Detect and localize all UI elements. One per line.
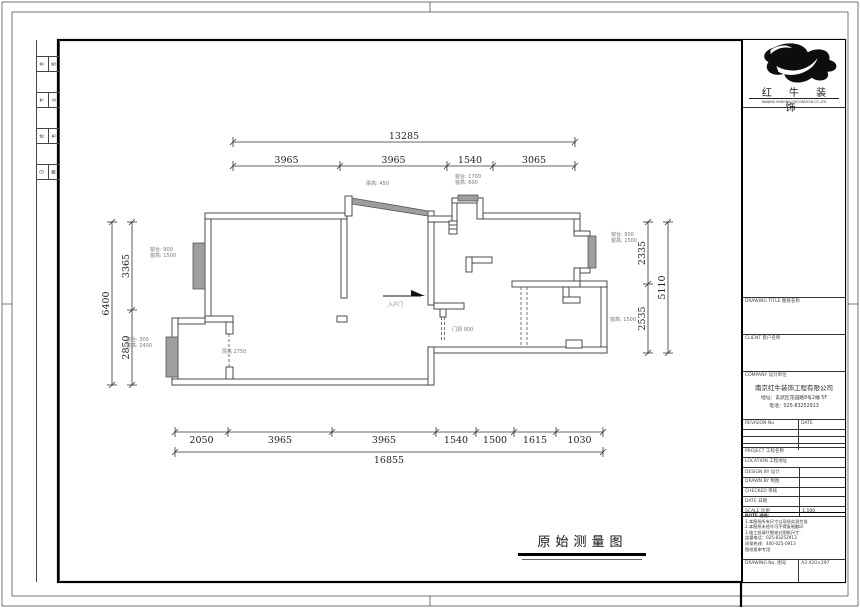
drawing-sheet: 1328539653965154030652050396539651540150… [0,0,860,608]
binding-margin-strip: 会签专业姓名日期 [36,40,60,582]
client-cell: CLIENT 客户名称 [743,335,845,372]
revision-col1: REVISION No. [743,420,799,429]
plan-annotation: 窗台: 900 [150,246,173,253]
margin-cell-label: 签 [51,62,57,66]
plan-annotation: 窗台: 1700 [455,173,481,180]
drawing-number-cell: DRAWING No. 图号 A3 420×297 [743,560,845,582]
drawing-no-label: DRAWING No. 图号 [743,560,799,582]
plan-annotation: 窗高: 600 [455,179,478,186]
revision-col2: DATE [799,420,845,429]
dim-label: 2335 [637,241,648,265]
title-block-row: DATE 日期 [743,497,845,507]
logo-tagline: NANJING HONGNIU DECORATION CO.,LTD [748,100,840,104]
title-block-row: CHECKED 审核 [743,488,845,498]
margin-cell-label: 会 [39,62,45,66]
plan-annotation: 窗台: 300 [126,336,149,343]
plan-annotation: 窗高: 1500 [150,252,176,259]
dim-label: 3965 [274,155,298,166]
client-label: CLIENT 客户名称 [743,335,845,342]
plan-annotation: 层高 2750 [222,348,246,355]
dim-label: 2535 [637,306,648,330]
dim-label: 6400 [101,291,112,315]
company-label: COMPANY 设计单位 [743,372,845,379]
entry-arrow-icon [383,290,425,296]
dim-label: 3065 [522,155,546,166]
margin-cell: 专业 [37,92,59,108]
dim-label: 3965 [372,435,396,446]
note-line: 图纸报审专用 [743,547,845,553]
dim-label: 1615 [523,435,547,446]
dim-label: 16855 [374,455,404,466]
dim-label: 2050 [189,435,213,446]
drawing-title-label: DRAWING TITLE 图纸名称 [743,298,845,305]
signature-rows: DESIGN BY 设计DRAWN BY 制图CHECKED 审核DATE 日期… [743,468,845,517]
dim-label: 1500 [483,435,507,446]
row-label: CHECKED 审核 [743,488,799,497]
location-cell: LOCATION 工程地址 [743,458,845,468]
row-label: DESIGN BY 设计 [743,468,799,477]
plan-annotation: 门洞 900 [452,326,473,333]
row-label: DATE 日期 [743,497,799,506]
dashed-openings [229,287,527,367]
margin-cell: 日期 [37,164,59,180]
margin-cell-label: 专 [39,98,45,102]
dim-label: 1540 [444,435,468,446]
project-label: PROJECT 工程名称 [743,448,845,455]
sheet-title: 原始测量图 [505,531,655,550]
location-label: LOCATION 工程地址 [743,458,845,465]
logo-cell: 红 牛 装 饰 NANJING HONGNIU DECORATION CO.,L… [743,40,845,108]
row-value [799,478,845,487]
notes-cell: NOTE 说明: 1.本图纸所有尺寸以现场实测为准2.本图纸未经许可不得复制翻印… [743,512,845,560]
row-value [799,468,845,477]
plan-annotation: 梁高: 450 [366,180,389,187]
dim-label: 3965 [268,435,292,446]
bull-logo-icon [743,40,845,84]
plan-annotation: 窗高: 1500 [610,316,636,323]
title-block-row: DESIGN BY 设计 [743,468,845,478]
paper-size-label: A3 420×297 [799,560,845,582]
revision-table: REVISION No. DATE [743,420,845,448]
row-value [799,497,845,506]
plan-annotation: 窗高: 2400 [126,342,152,349]
margin-cell: 会签 [37,56,59,72]
dim-label: 5110 [657,275,668,299]
margin-cell-label: 业 [51,98,57,102]
dim-label: 1030 [567,435,591,446]
company-cell: COMPANY 设计单位 南京红牛装饰工程有限公司 地址：玄武区花园路8号2幢 … [743,372,845,420]
key-plan-cell [743,108,845,298]
walls [172,196,607,385]
dim-label: 3965 [381,155,405,166]
floor-plan-svg: 1328539653965154030652050396539651540150… [0,0,860,608]
title-block: 红 牛 装 饰 NANJING HONGNIU DECORATION CO.,L… [741,40,845,582]
company-address: 地址：玄武区花园路8号2幢 5F [743,394,845,401]
logo-divider [749,98,839,99]
title-underline-thin [522,559,642,560]
bay-window [352,198,428,216]
dim-label: 13285 [389,131,419,142]
company-phone: 电话：025-83252913 [743,402,845,409]
row-label: DRAWN BY 制图 [743,478,799,487]
margin-cell: 姓名 [37,128,59,144]
row-value [799,488,845,497]
project-cell: PROJECT 工程名称 [743,448,845,458]
dim-label: 1540 [458,155,482,166]
drawing-title-cell: DRAWING TITLE 图纸名称 [743,298,845,335]
margin-cell-label: 名 [51,134,57,138]
plan-annotation: 窗高: 1500 [611,237,637,244]
title-underline [518,553,646,556]
plan-annotation: 窗台: 900 [611,231,634,238]
plan-annotation: 入户门 [388,301,403,308]
company-name: 南京红牛装饰工程有限公司 [743,382,845,392]
dim-label: 3365 [121,254,132,278]
margin-cell-label: 日 [39,170,45,174]
title-block-row: DRAWN BY 制图 [743,478,845,488]
margin-cell-label: 期 [51,170,57,174]
margin-cell-label: 姓 [39,134,45,138]
